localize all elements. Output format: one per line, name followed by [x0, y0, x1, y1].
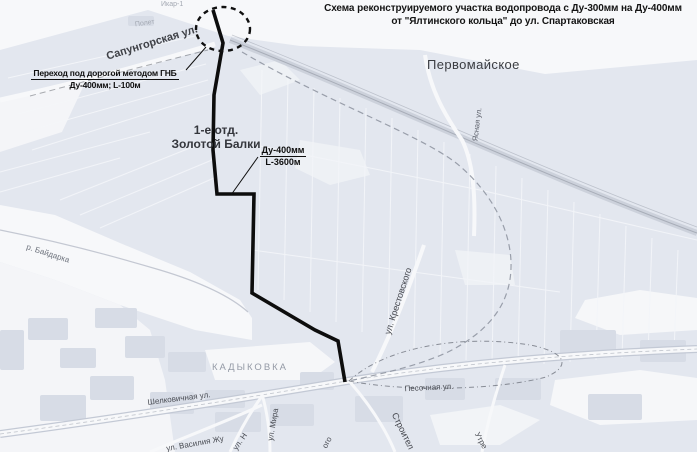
pipe-annotation-line2: L-3600м: [252, 157, 314, 168]
settlement-zb-line2: Золотой Балки: [168, 137, 264, 151]
pipe-annotation-line1: Ду-400мм: [260, 145, 307, 157]
hdd-annotation-line1: Переход под дорогой методом ГНБ: [31, 68, 178, 80]
settlement-pervomayskoe-label: Первомайское: [427, 57, 520, 72]
hdd-annotation: Переход под дорогой методом ГНБ Ду-400мм…: [22, 68, 188, 90]
scheme-title: Схема реконструируемого участка водопров…: [316, 3, 690, 28]
district-kadykovka-label: КАДЫКОВКА: [208, 362, 292, 373]
scheme-title-line1: Схема реконструируемого участка водопров…: [316, 3, 690, 16]
settlement-zb-line1: 1-е отд.: [168, 123, 264, 137]
settlement-zolotaya-balka-label: 1-е отд. Золотой Балки: [168, 123, 264, 151]
hdd-annotation-line2: Ду-400мм; L-100м: [22, 80, 188, 91]
pipeline-scheme-map: Схема реконструируемого участка водопров…: [0, 0, 697, 452]
poi-ikar-label: Икар-1: [161, 1, 183, 8]
scheme-title-line2: от "Ялтинского кольца" до ул. Спартаковс…: [316, 16, 690, 29]
